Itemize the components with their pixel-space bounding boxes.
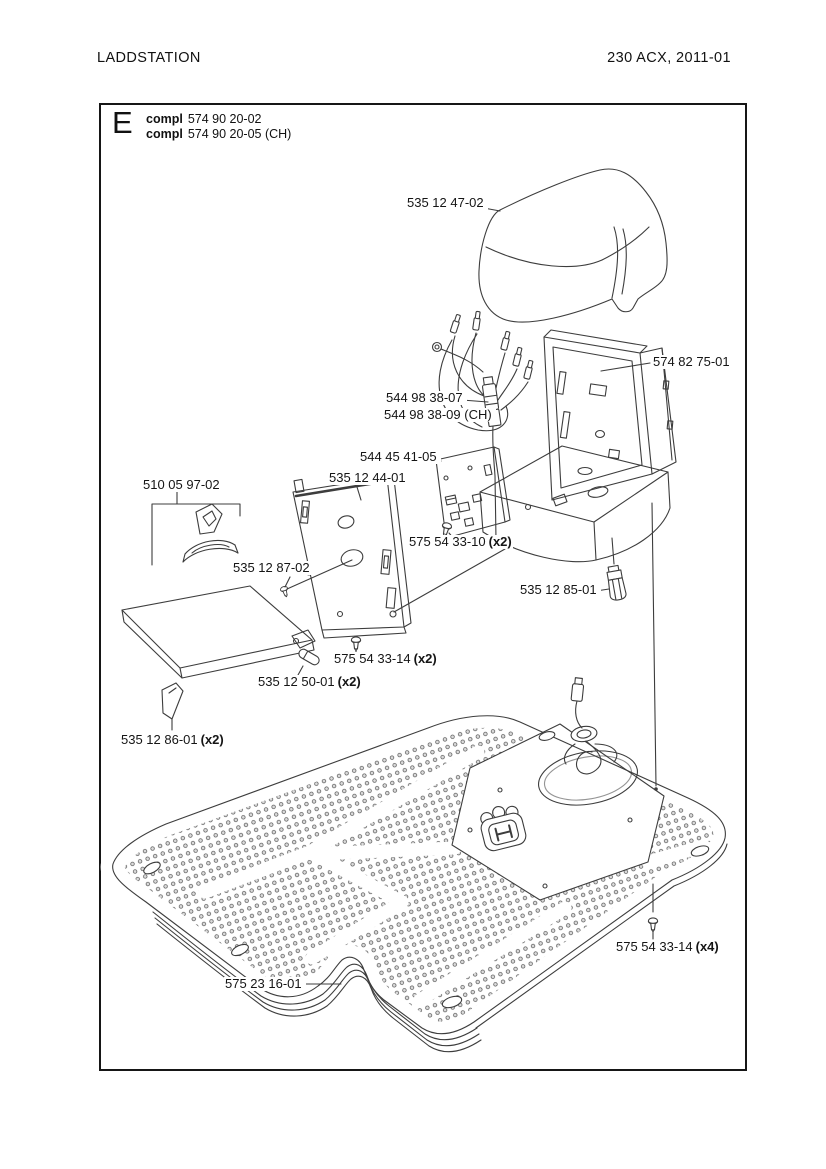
- part-label-screw-3314-x2: 575 54 33-14(x2): [333, 652, 438, 666]
- charge-plug: [605, 538, 627, 601]
- part-label-mounting-plate: 535 12 44-01: [328, 471, 410, 485]
- cable-grommet: [570, 725, 598, 743]
- parts-manual-page: LADDSTATION 230 ACX, 2011-01 E compl574 …: [0, 0, 826, 1169]
- locking-pin: [297, 648, 321, 667]
- part-label-charge-plug: 535 12 85-01: [519, 583, 601, 597]
- cable-connector: [571, 678, 584, 702]
- part-label-handle: 510 05 97-02: [142, 478, 224, 492]
- top-cover: [479, 169, 667, 322]
- hatch-cover: [122, 586, 315, 678]
- door-handle: [183, 504, 238, 562]
- wiring-harness: [433, 311, 534, 540]
- part-label-harness: 544 98 38-07: [385, 391, 467, 405]
- part-label-screw-8702: 535 12 87-02: [232, 561, 314, 575]
- exploded-parts-drawing: [0, 0, 826, 1169]
- part-label-circuit-board: 544 45 41-05: [359, 450, 441, 464]
- part-label-base-plate: 575 23 16-01: [224, 977, 306, 991]
- part-label-harness-ch: 544 98 38-09 (CH): [383, 408, 496, 422]
- contact-strip: [162, 683, 183, 719]
- part-label-screw-3310: 575 54 33-10(x2): [408, 535, 513, 549]
- part-label-rear-panel: 574 82 75-01: [652, 355, 734, 369]
- part-label-top-cover: 535 12 47-02: [406, 196, 488, 210]
- part-label-contact-strip: 535 12 86-01(x2): [120, 733, 225, 747]
- part-label-locking-pin: 535 12 50-01(x2): [257, 675, 362, 689]
- part-label-screw-3314-x4: 575 54 33-14(x4): [615, 940, 720, 954]
- mounting-plate: [293, 477, 411, 638]
